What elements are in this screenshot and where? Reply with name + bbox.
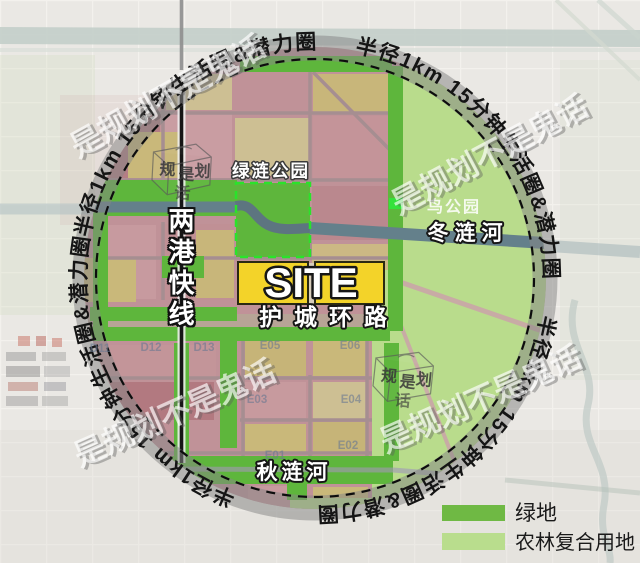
map-canvas: 半径1km 15分钟生活圈&潜力圈 半径1km 15分钟生活圈&潜力圈 半径1k… [0, 0, 640, 563]
green-park-label: 绿涟公园 [232, 161, 310, 181]
site-label: SITE [264, 259, 357, 306]
parcel-label: E04 [341, 394, 362, 406]
parcel-label: E05 [260, 340, 281, 352]
legend-label-farm: 农林复合用地 [515, 531, 635, 554]
stamp-char: 划 [194, 161, 211, 181]
stamp-char: 规 [380, 367, 398, 387]
parcel-label: E02 [338, 440, 358, 452]
north-river-label: 冬涟河 [428, 221, 509, 245]
express-line-label: 两港快线 [163, 207, 193, 339]
parcel-label: D12 [140, 342, 161, 354]
stamp-char: 规 [159, 160, 176, 179]
legend-swatch-green [442, 505, 505, 521]
legend-swatch-farm [442, 533, 505, 550]
stamp-char: 话 [394, 391, 412, 411]
stamp-char: 话 [174, 184, 191, 203]
parcel-label: E06 [340, 340, 360, 352]
stamp-char: 划 [415, 369, 433, 390]
south-river-label: 秋涟河 [257, 460, 332, 484]
parcel-label: D13 [193, 342, 214, 354]
parcel-label: D11 [90, 343, 111, 355]
stamp-char: 是 [177, 165, 195, 184]
ring-road-label: 护城环路 [259, 304, 399, 330]
parcel-label: E01 [265, 450, 286, 462]
stamp-char: 是 [398, 372, 417, 392]
planning-map: 半径1km 15分钟生活圈&潜力圈 半径1km 15分钟生活圈&潜力圈 半径1k… [0, 0, 640, 563]
green-park-area [236, 183, 310, 257]
legend-label-green: 绿地 [515, 502, 557, 525]
